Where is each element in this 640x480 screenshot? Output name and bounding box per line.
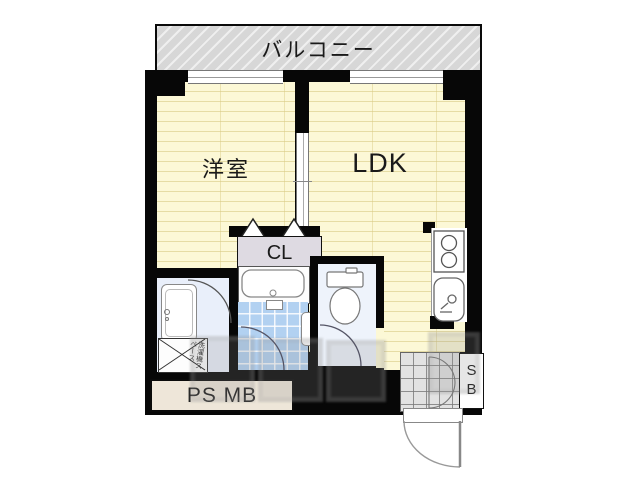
washbasin-icon (161, 284, 197, 342)
kitchen-wall-stub (430, 316, 454, 329)
wall-corner-block (145, 70, 185, 96)
bathtub-zone (238, 266, 310, 304)
watermark (258, 338, 323, 402)
sliding-door-partition (296, 133, 309, 228)
watermark (428, 332, 480, 394)
entry-door-threshold (403, 408, 463, 423)
watermark (326, 340, 386, 402)
closet-label: CL (267, 242, 293, 265)
balcony-area: バルコニー (155, 24, 482, 74)
window-western-room (188, 70, 283, 84)
kitchen-counter (431, 228, 467, 322)
window-ldk (350, 70, 443, 84)
wall-corner-block (443, 82, 465, 100)
watermark (190, 336, 255, 402)
floor-plan-canvas: バルコニー CL 洗濯機スペース SB PS MB (0, 0, 640, 480)
western-room-label: 洋室 (157, 152, 295, 184)
entry-door-icon (404, 421, 460, 467)
ldk-label: LDK (315, 148, 445, 179)
balcony-label: バルコニー (261, 34, 376, 64)
bathtub-step (266, 300, 283, 310)
